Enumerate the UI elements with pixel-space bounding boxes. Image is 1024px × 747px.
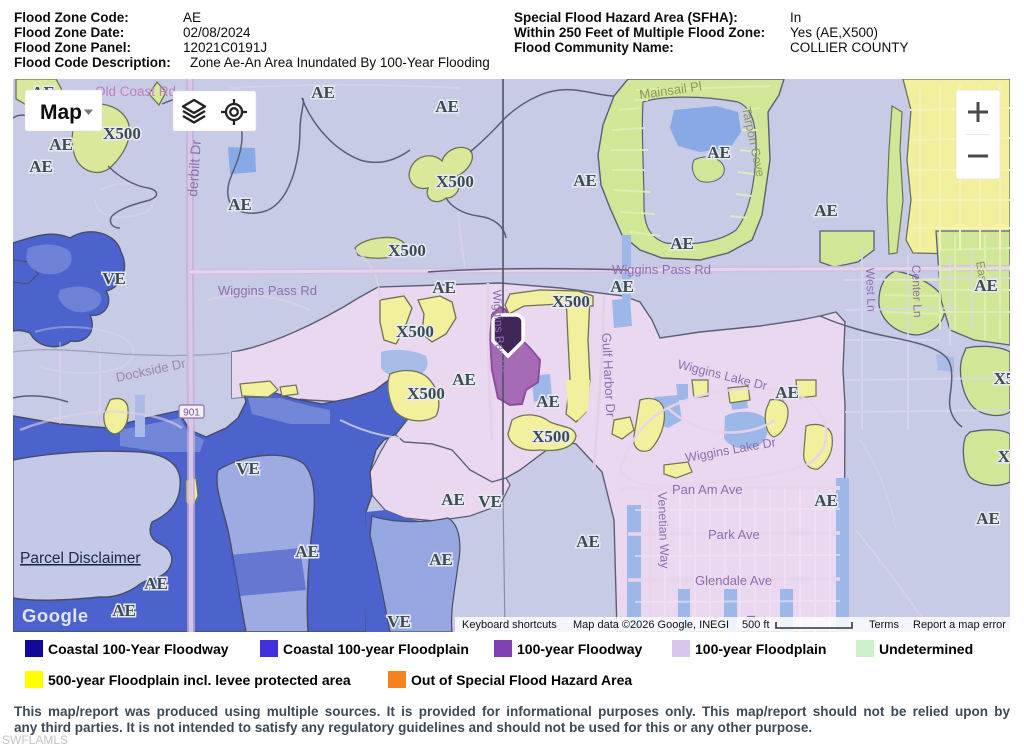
svg-text:AE: AE [49,135,73,154]
svg-text:Map: Map [40,101,82,124]
svg-text:AE: AE [228,195,252,214]
svg-text:West Ln: West Ln [863,268,879,312]
svg-text:AE: AE [707,143,731,162]
svg-text:AE: AE [452,370,476,389]
svg-text:Keyboard shortcuts: Keyboard shortcuts [462,619,557,631]
svg-text:X500: X500 [532,427,570,446]
svg-text:Map data ©2026 Google, INEGI: Map data ©2026 Google, INEGI [573,619,729,631]
svg-text:X500: X500 [436,172,474,191]
svg-text:Wiggins Pass Rd: Wiggins Pass Rd [218,283,317,298]
svg-text:AE: AE [814,491,838,510]
svg-text:AE: AE [295,542,319,561]
svg-text:VE: VE [236,459,260,478]
svg-text:Parcel Disclaimer: Parcel Disclaimer [20,550,141,567]
svg-text:AE: AE [432,278,456,297]
svg-text:Park Ave: Park Ave [708,527,760,542]
svg-text:AE: AE [976,509,1000,528]
svg-text:Glendale Ave: Glendale Ave [695,573,772,588]
svg-text:AE: AE [441,490,465,509]
svg-text:AE: AE [311,83,335,102]
svg-text:AE: AE [814,201,838,220]
svg-text:Wiggins Pass Rd: Wiggins Pass Rd [612,262,711,277]
svg-text:Center Ln: Center Ln [909,265,925,318]
svg-text:AE: AE [670,234,694,253]
svg-text:AE: AE [576,532,600,551]
svg-text:AE: AE [435,97,459,116]
svg-text:AE: AE [536,392,560,411]
svg-text:X5: X5 [994,369,1010,388]
svg-text:VE: VE [102,269,126,288]
svg-text:AE: AE [144,574,168,593]
svg-text:X500: X500 [396,322,434,341]
svg-text:AE: AE [775,383,799,402]
svg-text:AE: AE [974,276,998,295]
svg-text:Terms: Terms [869,619,899,631]
svg-text:X500: X500 [388,241,426,260]
svg-text:AE: AE [112,601,136,620]
svg-text:VE: VE [387,612,411,631]
svg-text:Venetian Way: Venetian Way [655,492,672,570]
svg-text:AE: AE [29,157,53,176]
svg-text:X500: X500 [407,384,445,403]
svg-text:VE: VE [478,492,502,511]
svg-text:Google: Google [22,605,89,626]
svg-text:AE: AE [429,550,453,569]
svg-text:X500: X500 [552,292,590,311]
svg-text:500 ft: 500 ft [742,619,770,631]
svg-text:Report a map error: Report a map error [913,619,1006,631]
svg-text:X500: X500 [103,124,141,143]
svg-text:901: 901 [183,408,200,419]
svg-text:Pan Am Ave: Pan Am Ave [672,482,743,497]
svg-text:Old Coast Rd: Old Coast Rd [95,84,176,99]
svg-text:AE: AE [610,277,634,296]
svg-text:X5: X5 [998,447,1010,466]
svg-text:AE: AE [573,171,597,190]
